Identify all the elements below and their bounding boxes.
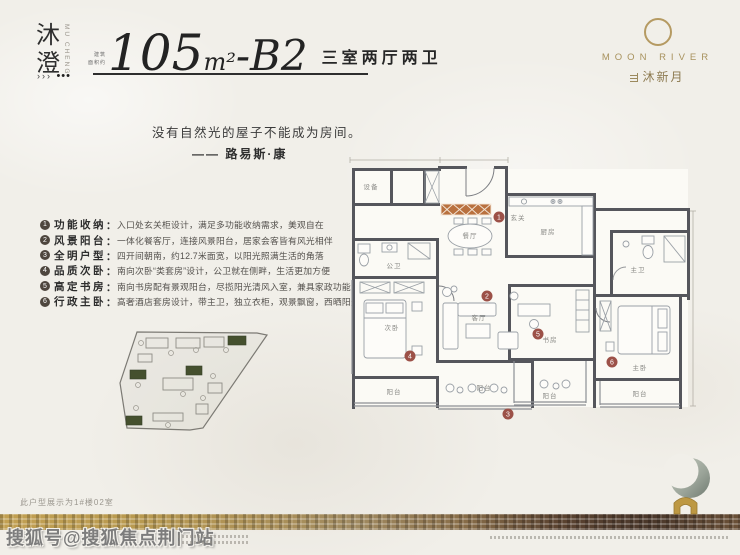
logo-cn-text: 沐新月 bbox=[642, 70, 684, 84]
feature-colon: ： bbox=[106, 233, 116, 248]
plan-badge-2: 2 bbox=[485, 294, 489, 301]
feature-number-badge: 1 bbox=[40, 220, 50, 230]
feature-description: 南向书房配有景观阳台，尽揽阳光清风入室，兼具家政功能 bbox=[117, 280, 351, 293]
feature-row: 5 高定书房 ： 南向书房配有景观阳台，尽揽阳光清风入室，兼具家政功能 bbox=[40, 279, 340, 294]
feature-label: 高定书房 bbox=[54, 279, 106, 294]
room-label-balcony-living: 阳台 bbox=[477, 383, 492, 392]
feature-description: 一体化餐客厅，连接风景阳台，居家会客皆有风光相伴 bbox=[117, 234, 333, 247]
feature-row: 6 行政主卧 ： 高奢酒店套房设计，带主卫，独立衣柜，观景飘窗，西晒阳光四季映照 bbox=[40, 294, 340, 309]
feature-number-badge: 2 bbox=[40, 235, 50, 245]
room-label-bath-guest: 公卫 bbox=[387, 262, 402, 270]
room-label-balcony-study: 阳台 bbox=[543, 391, 558, 400]
header-decor-marks: ››› ••• bbox=[37, 66, 71, 84]
feature-description: 入口处玄关柜设计，满足多功能收纳需求，美观自在 bbox=[117, 218, 324, 231]
feature-colon: ： bbox=[106, 279, 116, 294]
room-label-bedroom2: 次卧 bbox=[385, 323, 400, 332]
chevrons-decor: ››› bbox=[37, 71, 52, 81]
plan-badge-1: 1 bbox=[497, 215, 501, 222]
feature-row: 1 功能收纳 ： 入口处玄关柜设计，满足多功能收纳需求，美观自在 bbox=[40, 217, 340, 232]
feature-number-badge: 5 bbox=[40, 281, 50, 291]
feature-label: 行政主卧 bbox=[54, 294, 106, 309]
feature-description: 南向次卧“类套房”设计，公卫就在侧畔，生活更加方便 bbox=[117, 264, 330, 277]
quote-author: —— 路易斯·康 bbox=[192, 145, 287, 162]
crescent-moon-icon bbox=[650, 450, 722, 518]
feature-list: 1 功能收纳 ： 入口处玄关柜设计，满足多功能收纳需求，美观自在 2 风景阳台 … bbox=[40, 217, 340, 309]
dots-decor: ••• bbox=[56, 70, 71, 82]
plan-badge-6: 6 bbox=[610, 360, 614, 367]
feature-label: 全明户型 bbox=[54, 248, 106, 263]
unit-display-note: 此户型展示为1#楼02室 bbox=[20, 497, 114, 508]
floorplan-drawing: 1 2 3 4 5 6 玄关 厨房 餐厅 客厅 次卧 公卫 主卫 书房 主卧 设… bbox=[348, 156, 696, 424]
feature-label: 品质次卧 bbox=[54, 263, 106, 278]
feature-colon: ： bbox=[106, 217, 116, 232]
room-label-dining: 餐厅 bbox=[463, 231, 478, 240]
room-label-kitchen: 厨房 bbox=[541, 227, 556, 236]
feature-number-badge: 4 bbox=[40, 266, 50, 276]
rooms-description: 三室两厅两卫 bbox=[322, 50, 442, 67]
disclaimer-microtext bbox=[490, 536, 730, 539]
feature-number-badge: 3 bbox=[40, 250, 50, 260]
feature-number-badge: 6 bbox=[40, 297, 50, 307]
area-prefix-line2: 面积约 bbox=[88, 60, 106, 68]
room-label-living: 客厅 bbox=[472, 313, 487, 322]
plan-badge-4: 4 bbox=[408, 354, 412, 361]
siteplan-drawing bbox=[108, 328, 283, 440]
room-label-foyer: 玄关 bbox=[511, 213, 526, 222]
room-label-study: 书房 bbox=[543, 335, 558, 344]
feature-colon: ： bbox=[106, 263, 116, 278]
feature-row: 2 风景阳台 ： 一体化餐客厅，连接风景阳台，居家会客皆有风光相伴 bbox=[40, 232, 340, 247]
project-logo: MOON RIVER 沐新月 bbox=[575, 18, 740, 85]
disclaimer-microtext bbox=[178, 535, 248, 538]
title-underline bbox=[93, 73, 368, 75]
room-label-bath-master: 主卫 bbox=[631, 265, 646, 274]
feature-colon: ： bbox=[106, 248, 116, 263]
room-label-master: 主卧 bbox=[633, 363, 648, 372]
logo-english: MOON RIVER bbox=[575, 52, 740, 63]
developer-seal-icon bbox=[630, 73, 638, 82]
feature-row: 4 品质次卧 ： 南向次卧“类套房”设计，公卫就在侧畔，生活更加方便 bbox=[40, 263, 340, 278]
plan-badge-3: 3 bbox=[506, 412, 510, 419]
feature-row: 3 全明户型 ： 四开间朝南，约12.7米面宽，以阳光照满生活的角落 bbox=[40, 248, 340, 263]
feature-label: 风景阳台 bbox=[54, 233, 106, 248]
logo-chinese: 沐新月 bbox=[575, 68, 740, 85]
plan-badge-5: 5 bbox=[536, 332, 540, 339]
moon-ring-icon bbox=[644, 18, 672, 46]
quote-text: 没有自然光的屋子不能成为房间。 bbox=[152, 122, 362, 141]
room-label-utility: 设备 bbox=[364, 182, 379, 191]
room-label-balcony-b2: 阳台 bbox=[387, 387, 402, 396]
feature-colon: ： bbox=[106, 294, 116, 309]
feature-description: 四开间朝南，约12.7米面宽，以阳光照满生活的角落 bbox=[117, 249, 324, 262]
area-unit: m² bbox=[203, 48, 235, 76]
foyer-cabinet-highlight bbox=[441, 204, 491, 215]
area-prefix-line1: 建筑 bbox=[88, 52, 106, 60]
area-prefix-label: 建筑 面积约 bbox=[88, 52, 106, 67]
feature-label: 功能收纳 bbox=[54, 217, 106, 232]
disclaimer-microtext bbox=[178, 541, 248, 544]
room-label-balcony-master: 阳台 bbox=[633, 389, 648, 398]
